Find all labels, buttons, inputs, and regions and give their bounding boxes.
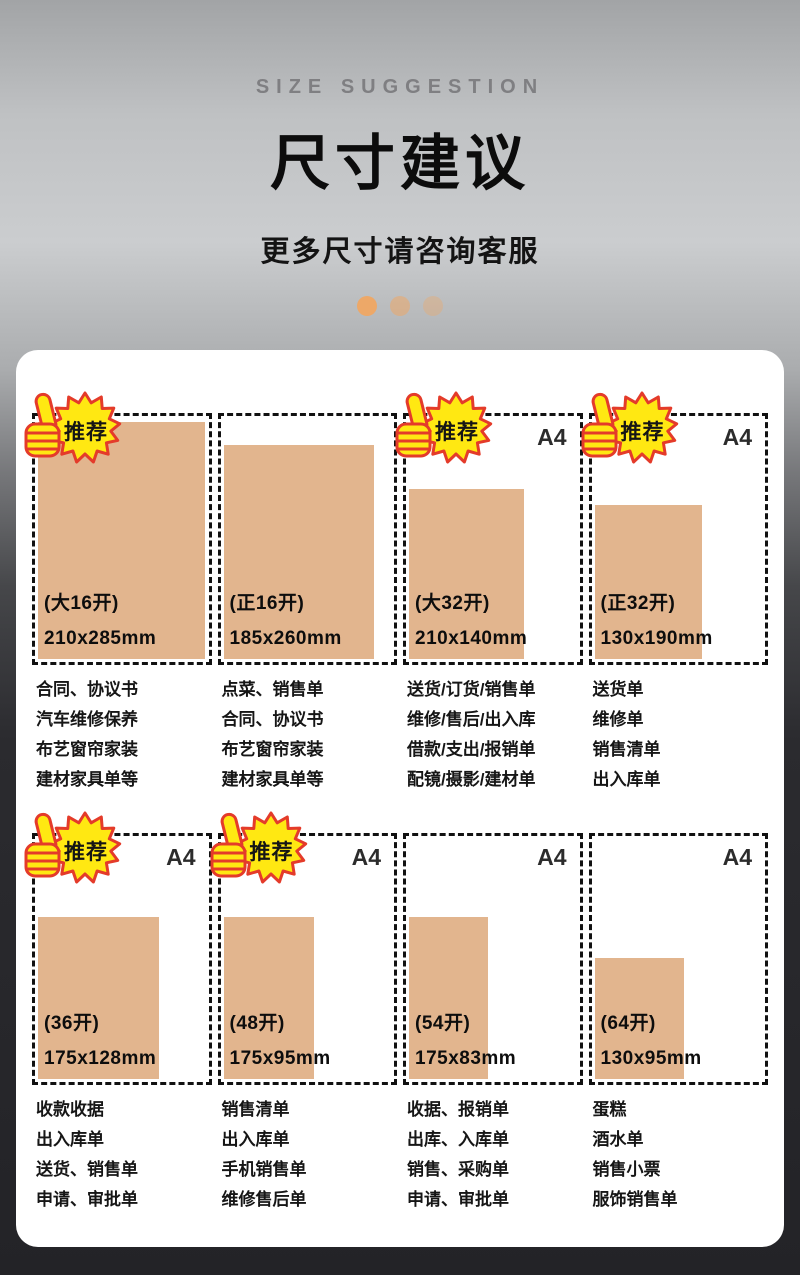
size-meta: (54开) 175x83mm	[415, 1008, 516, 1070]
size-panel-zheng32kai: 推荐 A4 (正32开) 130x190mm 送货单 维修单 销售清单 出入库单	[589, 413, 769, 799]
uses-list: 合同、协议书 汽车维修保养 布艺窗帘家装 建材家具单等	[32, 675, 212, 799]
use-item: 收据、报销单	[407, 1095, 583, 1125]
carousel-dot[interactable]	[357, 296, 377, 316]
use-item: 汽车维修保养	[36, 705, 212, 735]
size-grid-row-2: 推荐 A4 (36开) 175x128mm 收款收据 出入库单 送货、销售单 申…	[16, 833, 784, 1219]
size-meta: (36开) 175x128mm	[44, 1008, 156, 1070]
size-mm-label: 210x285mm	[44, 628, 156, 650]
recommend-badge: 推荐	[392, 389, 496, 469]
paper-outline-box: 推荐 (大16开) 210x285mm	[32, 413, 212, 665]
use-item: 酒水单	[593, 1125, 769, 1155]
size-panel-da16kai: 推荐 (大16开) 210x285mm 合同、协议书 汽车维修保养 布艺窗帘家装…	[32, 413, 212, 799]
use-item: 送货单	[593, 675, 769, 705]
uses-list: 销售清单 出入库单 手机销售单 维修售后单	[218, 1095, 398, 1219]
use-item: 出入库单	[222, 1125, 398, 1155]
use-item: 合同、协议书	[222, 705, 398, 735]
size-mm-label: 175x83mm	[415, 1048, 516, 1070]
thumbs-up-icon	[397, 393, 430, 456]
use-item: 出入库单	[36, 1125, 212, 1155]
size-chart-card: 推荐 (大16开) 210x285mm 合同、协议书 汽车维修保养 布艺窗帘家装…	[16, 350, 784, 1247]
use-item: 维修/售后/出入库	[407, 705, 583, 735]
paper-outline-box: 推荐 A4 (36开) 175x128mm	[32, 833, 212, 1085]
uses-list: 点菜、销售单 合同、协议书 布艺窗帘家装 建材家具单等	[218, 675, 398, 799]
use-item: 销售清单	[222, 1095, 398, 1125]
size-name-label: (36开)	[44, 1008, 156, 1035]
uses-list: 送货/订货/销售单 维修/售后/出入库 借款/支出/报销单 配镜/摄影/建材单	[403, 675, 583, 799]
use-item: 销售、采购单	[407, 1155, 583, 1185]
use-item: 布艺窗帘家装	[222, 735, 398, 765]
size-panel-54kai: A4 (54开) 175x83mm 收据、报销单 出库、入库单 销售、采购单 申…	[403, 833, 583, 1219]
size-mm-label: 130x190mm	[601, 628, 713, 650]
thumbs-up-icon	[212, 813, 245, 876]
carousel-dot[interactable]	[390, 296, 410, 316]
a4-reference-label: A4	[723, 844, 752, 871]
recommend-badge-label: 推荐	[64, 836, 108, 866]
use-item: 借款/支出/报销单	[407, 735, 583, 765]
use-item: 维修单	[593, 705, 769, 735]
a4-reference-label: A4	[537, 424, 566, 451]
size-meta: (正16开) 185x260mm	[230, 588, 342, 650]
recommend-badge: 推荐	[578, 389, 682, 469]
use-item: 销售清单	[593, 735, 769, 765]
uses-list: 蛋糕 酒水单 销售小票 服饰销售单	[589, 1095, 769, 1219]
size-meta: (大16开) 210x285mm	[44, 588, 156, 650]
size-name-label: (正32开)	[601, 588, 713, 615]
recommend-badge-label: 推荐	[435, 416, 479, 446]
use-item: 出库、入库单	[407, 1125, 583, 1155]
use-item: 申请、审批单	[407, 1185, 583, 1215]
size-panel-64kai: A4 (64开) 130x95mm 蛋糕 酒水单 销售小票 服饰销售单	[589, 833, 769, 1219]
starburst-icon	[50, 813, 119, 882]
a4-reference-label: A4	[537, 844, 566, 871]
thumbs-up-icon	[583, 393, 616, 456]
recommend-badge-icon	[207, 809, 311, 889]
use-item: 合同、协议书	[36, 675, 212, 705]
use-item: 配镜/摄影/建材单	[407, 765, 583, 795]
use-item: 维修售后单	[222, 1185, 398, 1215]
recommend-badge-label: 推荐	[621, 416, 665, 446]
size-panel-zheng16kai: (正16开) 185x260mm 点菜、销售单 合同、协议书 布艺窗帘家装 建材…	[218, 413, 398, 799]
size-name-label: (64开)	[601, 1008, 702, 1035]
page-subtitle: 更多尺寸请咨询客服	[0, 228, 800, 270]
starburst-icon	[421, 393, 490, 462]
size-name-label: (正16开)	[230, 588, 342, 615]
use-item: 手机销售单	[222, 1155, 398, 1185]
a4-reference-label: A4	[352, 844, 381, 871]
size-meta: (正32开) 130x190mm	[601, 588, 713, 650]
carousel-dots	[0, 296, 800, 316]
size-mm-label: 130x95mm	[601, 1048, 702, 1070]
paper-outline-box: A4 (64开) 130x95mm	[589, 833, 769, 1085]
use-item: 销售小票	[593, 1155, 769, 1185]
uses-list: 收款收据 出入库单 送货、销售单 申请、审批单	[32, 1095, 212, 1219]
a4-reference-label: A4	[166, 844, 195, 871]
size-mm-label: 185x260mm	[230, 628, 342, 650]
starburst-icon	[236, 813, 305, 882]
size-mm-label: 175x95mm	[230, 1048, 331, 1070]
size-name-label: (48开)	[230, 1008, 331, 1035]
carousel-dot[interactable]	[423, 296, 443, 316]
starburst-icon	[607, 393, 676, 462]
size-panel-48kai: 推荐 A4 (48开) 175x95mm 销售清单 出入库单 手机销售单 维修售…	[218, 833, 398, 1219]
use-item: 蛋糕	[593, 1095, 769, 1125]
paper-outline-box: 推荐 A4 (大32开) 210x140mm	[403, 413, 583, 665]
recommend-badge: 推荐	[207, 809, 311, 889]
size-name-label: (54开)	[415, 1008, 516, 1035]
use-item: 送货、销售单	[36, 1155, 212, 1185]
size-mm-label: 175x128mm	[44, 1048, 156, 1070]
size-name-label: (大32开)	[415, 588, 527, 615]
recommend-badge-icon	[21, 809, 125, 889]
recommend-badge-icon	[392, 389, 496, 469]
paper-outline-box: 推荐 A4 (正32开) 130x190mm	[589, 413, 769, 665]
uses-list: 收据、报销单 出库、入库单 销售、采购单 申请、审批单	[403, 1095, 583, 1219]
a4-reference-label: A4	[723, 424, 752, 451]
use-item: 布艺窗帘家装	[36, 735, 212, 765]
size-name-label: (大16开)	[44, 588, 156, 615]
use-item: 送货/订货/销售单	[407, 675, 583, 705]
use-item: 建材家具单等	[36, 765, 212, 795]
use-item: 申请、审批单	[36, 1185, 212, 1215]
use-item: 服饰销售单	[593, 1185, 769, 1215]
size-panel-36kai: 推荐 A4 (36开) 175x128mm 收款收据 出入库单 送货、销售单 申…	[32, 833, 212, 1219]
paper-outline-box: (正16开) 185x260mm	[218, 413, 398, 665]
paper-outline-box: A4 (54开) 175x83mm	[403, 833, 583, 1085]
use-item: 点菜、销售单	[222, 675, 398, 705]
page-title: 尺寸建议	[0, 115, 800, 202]
size-mm-label: 210x140mm	[415, 628, 527, 650]
size-meta: (48开) 175x95mm	[230, 1008, 331, 1070]
recommend-badge-label: 推荐	[250, 836, 294, 866]
size-suggestion-header: SIZE SUGGESTION 尺寸建议 更多尺寸请咨询客服	[0, 0, 800, 350]
recommend-badge: 推荐	[21, 809, 125, 889]
use-item: 出入库单	[593, 765, 769, 795]
recommend-badge-icon	[578, 389, 682, 469]
size-panel-da32kai: 推荐 A4 (大32开) 210x140mm 送货/订货/销售单 维修/售后/出…	[403, 413, 583, 799]
use-item: 收款收据	[36, 1095, 212, 1125]
header-eyebrow: SIZE SUGGESTION	[0, 0, 800, 99]
size-meta: (64开) 130x95mm	[601, 1008, 702, 1070]
thumbs-up-icon	[26, 813, 59, 876]
size-grid-row-1: 推荐 (大16开) 210x285mm 合同、协议书 汽车维修保养 布艺窗帘家装…	[16, 350, 784, 799]
uses-list: 送货单 维修单 销售清单 出入库单	[589, 675, 769, 799]
paper-outline-box: 推荐 A4 (48开) 175x95mm	[218, 833, 398, 1085]
size-meta: (大32开) 210x140mm	[415, 588, 527, 650]
use-item: 建材家具单等	[222, 765, 398, 795]
